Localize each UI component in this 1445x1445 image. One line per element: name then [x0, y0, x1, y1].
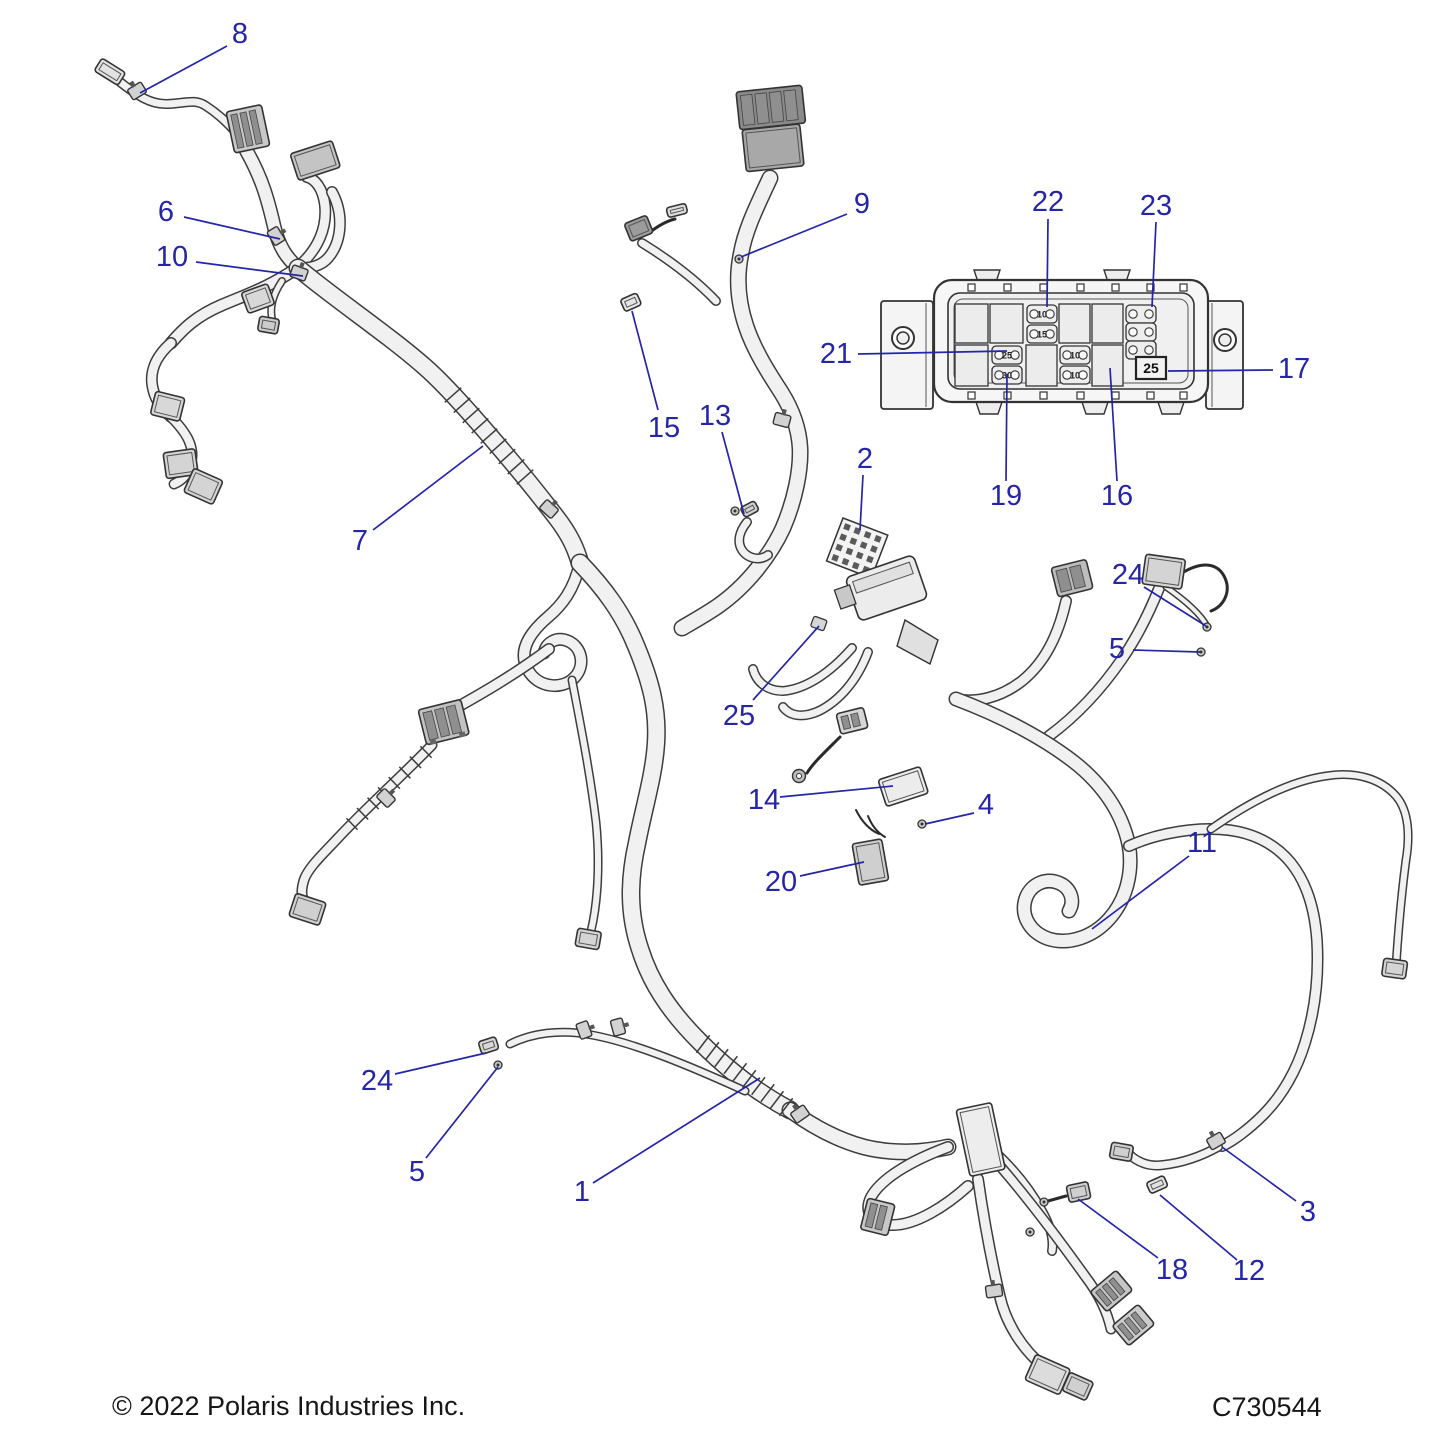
callout-number: 4: [978, 789, 994, 821]
conduit-junction: [956, 1103, 1005, 1177]
callout-number: 11: [1187, 827, 1217, 859]
callout-leader-line: [1160, 1195, 1237, 1260]
fuse-amp-label: 25: [1143, 360, 1159, 376]
callout-15: 15: [632, 311, 680, 444]
callout-5: 5: [409, 1067, 498, 1188]
callout-number: 19: [990, 480, 1022, 512]
relay-cavity: [1092, 304, 1123, 343]
connector: [1109, 1142, 1133, 1162]
callout-number: 24: [1112, 559, 1144, 591]
connector: [290, 140, 340, 180]
callout-number: 22: [1032, 186, 1064, 218]
callout-18: 18: [1078, 1199, 1188, 1286]
ecu-connector: [742, 124, 804, 172]
callout-number: 8: [232, 18, 248, 50]
callout-number: 7: [352, 525, 368, 557]
fuse-amp-label: 10: [1037, 310, 1047, 320]
callout-number: 18: [1156, 1254, 1188, 1286]
parts-diagram-page: 25301015101025 8610715139222321171916225…: [0, 0, 1445, 1445]
fuse: 10: [1060, 366, 1090, 384]
callout-leader-line: [395, 1053, 486, 1074]
connector: [1142, 554, 1186, 589]
callout-14: 14: [748, 784, 893, 816]
clip-24: [478, 1036, 499, 1054]
wiring-harness-diagram: 25301015101025 8610715139222321171916225…: [0, 0, 1445, 1445]
callout-leader-line: [632, 311, 658, 410]
harness-tube: [1211, 775, 1408, 966]
callout-leader-line: [140, 46, 227, 93]
callout-number: 10: [156, 241, 188, 273]
connector-20: [852, 839, 889, 886]
connector: [1112, 1304, 1155, 1346]
callout-24: 24: [361, 1053, 486, 1097]
fuse: 25: [992, 346, 1022, 364]
wire: [807, 737, 840, 773]
callout-leader-line: [800, 862, 864, 876]
callout-number: 2: [857, 443, 873, 475]
callout-20: 20: [765, 862, 864, 898]
harness-tube-fill: [300, 177, 325, 265]
callout-number: 9: [854, 188, 870, 220]
callout-leader-line: [593, 1078, 760, 1183]
callout-leader-line: [1092, 856, 1189, 929]
end-cap: [94, 58, 126, 86]
module-clip-25: [810, 616, 827, 631]
callout-leader-line: [1078, 1199, 1158, 1258]
callout-number: 1: [574, 1176, 590, 1208]
harness-tube-fill: [642, 243, 716, 301]
fuse: [1126, 305, 1156, 323]
fuse: 15: [1027, 325, 1057, 343]
bolt: [1040, 1198, 1048, 1206]
fuse: 10: [1060, 346, 1090, 364]
connector: [289, 893, 327, 926]
relay-cavity: [1026, 345, 1057, 386]
callout-leader-line: [780, 786, 893, 797]
callout-leader-line: [860, 475, 863, 530]
callout-number: 25: [723, 700, 755, 732]
fusebox-bracket-left: [881, 301, 933, 409]
main-connector: [418, 699, 470, 746]
clamp: [610, 1016, 631, 1036]
callout-leader-line: [426, 1067, 498, 1158]
ecu-connector: [736, 85, 806, 130]
relay-cavity: [955, 304, 988, 343]
harness-tube: [1129, 829, 1318, 1146]
relay-connector: [836, 707, 868, 734]
bolt: [731, 507, 739, 515]
harness-tube-fill: [1129, 829, 1318, 1146]
callout-13: 13: [699, 400, 744, 514]
terminal-cap: [666, 203, 688, 218]
callout-leader-line: [1047, 219, 1048, 307]
callout-leader-line: [1168, 370, 1273, 371]
callout-number: 17: [1278, 353, 1310, 385]
callout-number: 24: [361, 1065, 393, 1097]
callout-leader-line: [722, 432, 744, 514]
fuse-box: 25301015101025: [881, 270, 1243, 414]
callout-number: 13: [699, 400, 731, 432]
fuse: 10: [1027, 305, 1057, 323]
callout-leader-line: [1133, 650, 1200, 652]
callout-number: 15: [648, 412, 680, 444]
connector: [1090, 1270, 1133, 1312]
callout-3: 3: [1222, 1147, 1316, 1228]
callout-4: 4: [925, 789, 994, 824]
harness-tube: [298, 268, 580, 563]
copyright-text: © 2022 Polaris Industries Inc.: [112, 1391, 465, 1421]
fuse-amp-label: 25: [1002, 351, 1012, 361]
callout-number: 14: [748, 784, 780, 816]
callout-number: 16: [1101, 480, 1133, 512]
sensor-connector: [624, 215, 653, 242]
fuse: [1126, 323, 1156, 341]
injector-connector: [150, 391, 185, 422]
module-bracket: [897, 620, 938, 664]
bolt: [1026, 1228, 1034, 1236]
callout-5: 5: [1109, 633, 1200, 665]
relay-cavity: [990, 304, 1023, 343]
relay-cavity: [1059, 304, 1090, 343]
clip: [1381, 958, 1407, 979]
callout-leader-line: [373, 446, 483, 530]
fuse-amp-label: 10: [1070, 351, 1080, 361]
callout-number: 21: [820, 338, 852, 370]
callout-number: 20: [765, 866, 797, 898]
callout-2: 2: [857, 443, 873, 530]
harness-tube-fill: [956, 601, 1066, 700]
callout-leader-line: [1006, 374, 1007, 481]
callout-number: 5: [1109, 633, 1125, 665]
callout-layer: 8610715139222321171916225245144201124513…: [140, 18, 1316, 1287]
harness-tube-fill: [302, 745, 432, 906]
callout-number: 23: [1140, 190, 1172, 222]
callout-number: 6: [158, 196, 174, 228]
fuse-boxed: 25: [1136, 357, 1166, 379]
harness-tube-fill: [1211, 775, 1408, 966]
wire: [1048, 1196, 1066, 1201]
bolt: [918, 820, 926, 828]
harness-tube-fill: [246, 150, 298, 268]
loose-terminal-15: [620, 293, 642, 312]
connector: [575, 928, 602, 950]
callout-number: 5: [409, 1156, 425, 1188]
relay-cavity: [1092, 345, 1123, 386]
callout-1: 1: [574, 1078, 760, 1208]
callout-8: 8: [140, 18, 248, 93]
fuse-amp-label: 15: [1037, 330, 1047, 340]
callout-7: 7: [352, 446, 483, 557]
callout-number: 3: [1300, 1196, 1316, 1228]
callout-number: 12: [1233, 1255, 1265, 1287]
callout-leader-line: [925, 813, 974, 824]
ring-terminal: [793, 770, 806, 783]
callout-leader-line: [1222, 1147, 1296, 1201]
part-code-text: C730544: [1212, 1392, 1322, 1422]
connector: [1051, 559, 1093, 597]
fuse-amp-label: 10: [1070, 371, 1080, 381]
connector: [257, 316, 279, 334]
multi-pin-connector: [226, 105, 270, 154]
sleeve-12: [1146, 1175, 1168, 1194]
